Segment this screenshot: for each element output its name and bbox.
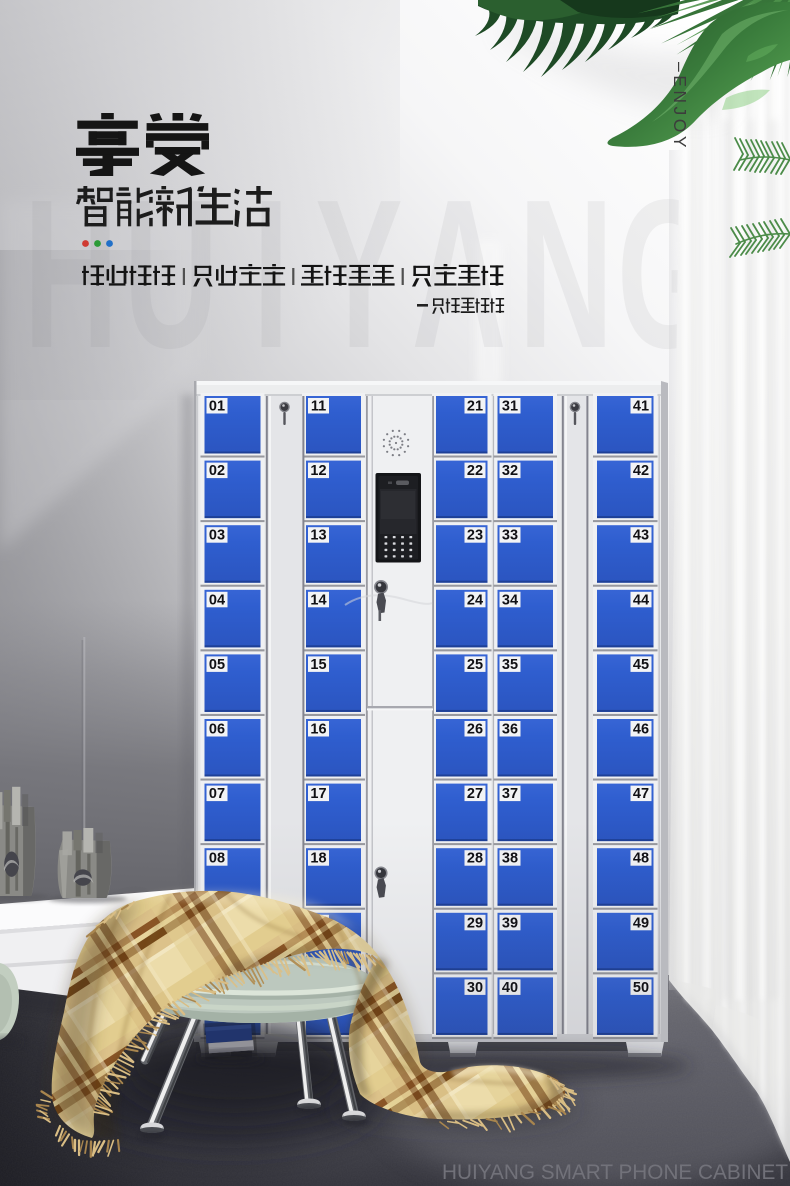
svg-text:37: 37 [502,786,518,802]
svg-text:31: 31 [502,399,518,415]
svg-text:02: 02 [209,463,225,479]
svg-text:34: 34 [502,592,518,608]
svg-text:12: 12 [310,463,326,479]
svg-text:26: 26 [467,722,483,738]
svg-text:22: 22 [467,463,483,479]
svg-text:H: H [24,156,119,393]
svg-text:16: 16 [310,722,326,738]
svg-text:47: 47 [633,786,649,802]
svg-text:25: 25 [467,657,483,673]
svg-text:33: 33 [502,528,518,544]
svg-text:13: 13 [310,528,326,544]
svg-text:43: 43 [633,528,649,544]
svg-text:21: 21 [467,399,483,415]
svg-text:–ENJOY: –ENJOY [670,62,690,151]
svg-text:15: 15 [310,657,326,673]
svg-text:27: 27 [467,786,483,802]
svg-text:42: 42 [633,463,649,479]
svg-text:07: 07 [209,786,225,802]
svg-text:36: 36 [502,722,518,738]
svg-text:11: 11 [311,399,326,415]
svg-text:23: 23 [467,528,483,544]
svg-text:05: 05 [209,657,225,673]
svg-text:04: 04 [209,592,225,608]
svg-text:14: 14 [310,592,326,608]
svg-text:17: 17 [310,786,326,802]
svg-text:N: N [519,156,614,393]
svg-text:41: 41 [633,399,649,415]
svg-text:35: 35 [502,657,518,673]
svg-text:32: 32 [502,463,518,479]
svg-text:HUIYANG SMART PHONE CABINET: HUIYANG SMART PHONE CABINET [442,1161,788,1184]
svg-text:06: 06 [209,722,225,738]
svg-text:46: 46 [633,722,649,738]
svg-text:01: 01 [209,399,225,415]
svg-text:44: 44 [633,592,649,608]
svg-text:03: 03 [209,528,225,544]
svg-text:24: 24 [467,592,483,608]
svg-text:45: 45 [633,657,649,673]
